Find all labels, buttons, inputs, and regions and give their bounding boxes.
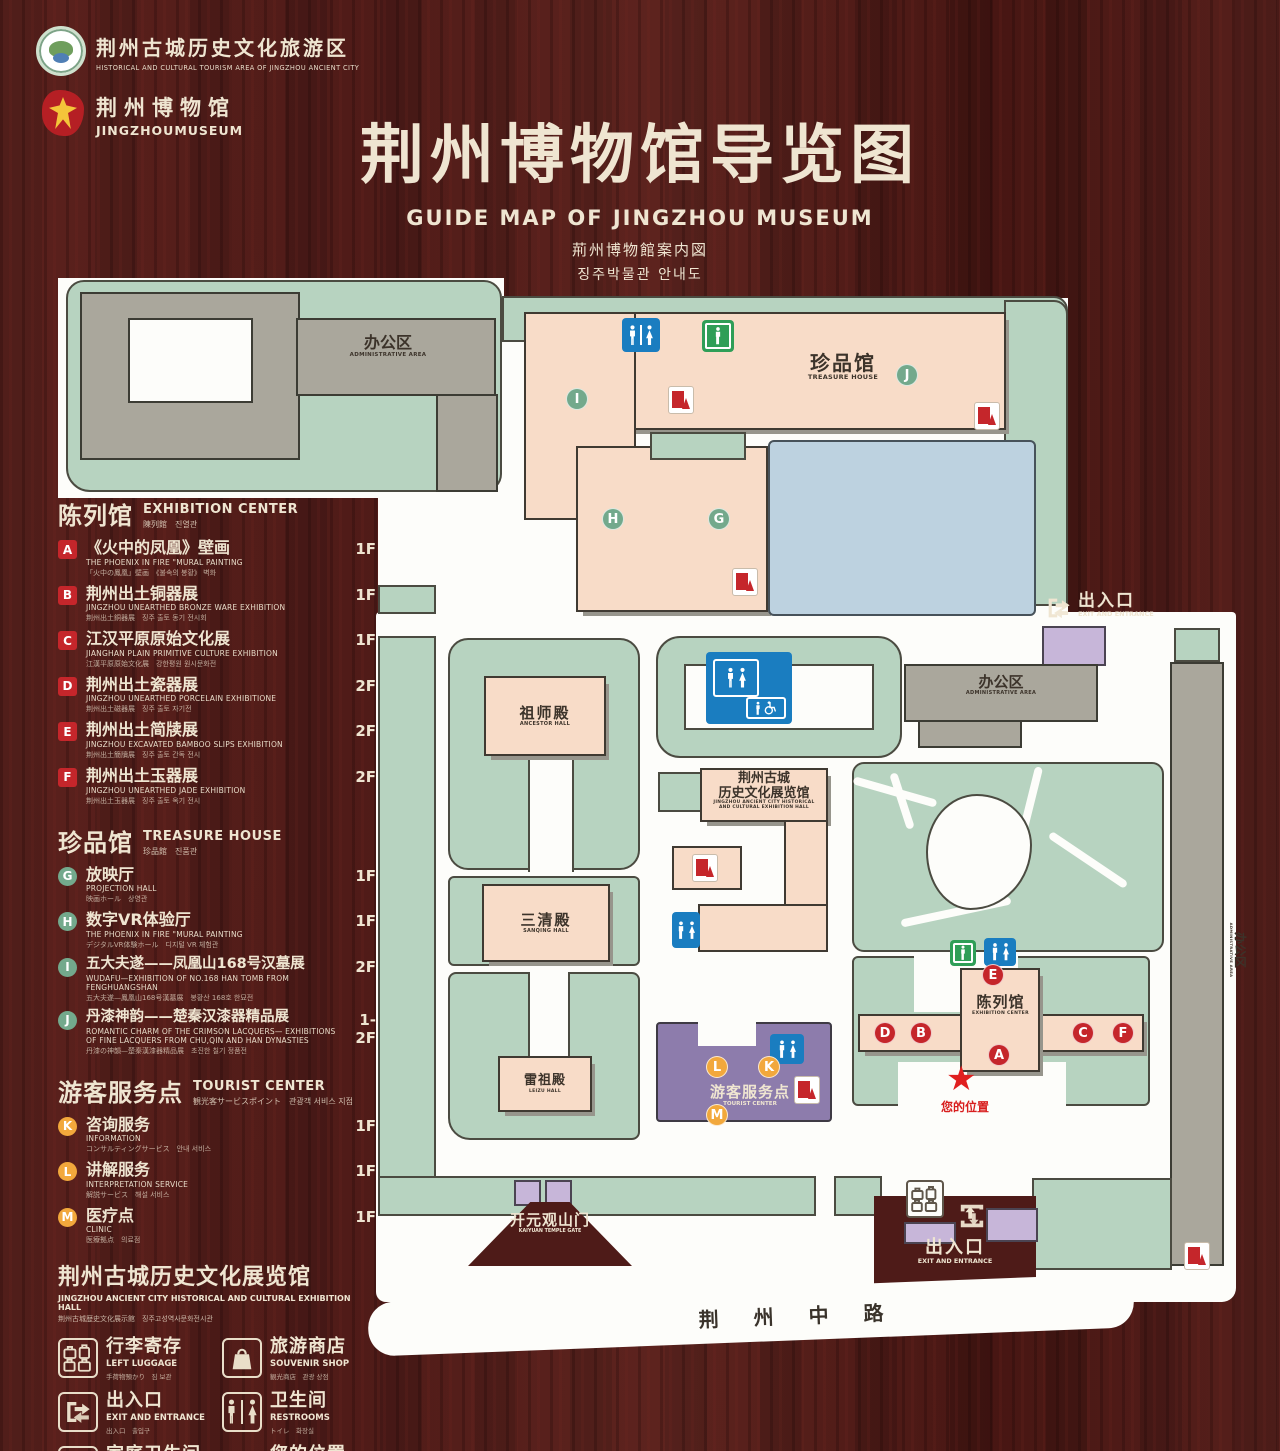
your-location-star: ★ [946, 1062, 976, 1096]
symbol-exit-entrance: 出入口 EXIT AND ENTRANCE 出入口 출입구 [58, 1392, 212, 1435]
escalator-icon [1184, 1242, 1210, 1270]
leizu-hall: 雷祖殿 LEIZU HALL [498, 1056, 592, 1112]
family-restrooms-icon [58, 1446, 98, 1451]
your-location-label: 您的位置 [910, 1098, 1020, 1115]
symbol-souvenir-shop: 旅游商店 SOUVENIR SHOP 観光商店 관광 상점 [222, 1338, 376, 1381]
legend-item-L: L 讲解服务 INTERPRETATION SERVICE 解説サービス 해설 … [58, 1161, 376, 1200]
museum-title: 荆州博物馆 JINGZHOUMUSEUM [96, 92, 243, 138]
marker-M: M [706, 1104, 728, 1126]
hall-heading: 荆州古城历史文化展览馆 JINGZHOU ANCIENT CITY HISTOR… [58, 1259, 376, 1324]
section-treasure-house: 珍品馆 TREASURE HOUSE 珍品館 진품관 [58, 823, 376, 858]
marker-D: D [874, 1022, 896, 1044]
admin-courtyard [128, 318, 253, 403]
tourism-area-en: HISTORICAL AND CULTURAL TOURISM AREA OF … [96, 64, 359, 72]
ancestor-corridor [528, 756, 574, 872]
marker-K: K [758, 1056, 780, 1078]
section-exhibition-center: 陈列馆 EXHIBITION CENTER 陳列館 진열관 [58, 496, 376, 531]
section-tourist-center: 游客服务点 TOURIST CENTER 観光客サービスポイント 관광객 서비스… [58, 1073, 376, 1108]
restroom-sign-exhibition [984, 938, 1016, 966]
gatehouse-building [1042, 626, 1106, 666]
south-lawn-left [378, 1176, 816, 1216]
tourist-notch [698, 1022, 756, 1046]
kaiyuan-gate-label: 开元观山门 KAIYUAN TEMPLE GATE [468, 1212, 632, 1234]
restroom-sign-central [706, 652, 792, 724]
title-en: GUIDE MAP OF JINGZHOU MUSEUM [240, 206, 1040, 230]
restrooms-icon [222, 1392, 262, 1432]
marker-I: I [566, 388, 588, 410]
tourist-center-label: 游客服务点 TOURIST CENTER [685, 1084, 815, 1107]
tourism-area-cn: 荆州古城历史文化旅游区 [96, 32, 359, 61]
lake [768, 440, 1036, 616]
marker-B: B [910, 1022, 932, 1044]
title-cn: 荆州博物馆导览图 [240, 104, 1040, 196]
legend-panel: 陈列馆 EXHIBITION CENTER 陳列館 진열관 A 《火中的凤凰》壁… [58, 496, 376, 1451]
marker-J: J [896, 364, 918, 386]
legend-item-B: B 荆州出土铜器展 JINGZHOU UNEARTHED BRONZE WARE… [58, 585, 376, 624]
museum-en: JINGZHOUMUSEUM [96, 123, 243, 138]
legend-item-F: F 荆州出土玉器展 JINGZHOU UNEARTHED JADE EXHIBI… [58, 767, 376, 806]
your-location-icon: ★ [222, 1446, 262, 1451]
sanqing-hall: 三清殿 SANQING HALL [482, 884, 610, 962]
exit-top-label: 出入口 EXIT AND ENTRANCE [1078, 592, 1188, 618]
admin-right-label: 办公区 ADMINISTRATIVE AREA [904, 674, 1098, 696]
legend-item-E: E 荆州出土简牍展 JINGZHOU EXCAVATED BAMBOO SLIP… [58, 721, 376, 760]
admin-right-annex [918, 720, 1022, 748]
legend-item-M: M 医疗点 CLINIC 医療拠点 의료점 1F [58, 1207, 376, 1246]
elevator-sign-treasure [702, 320, 734, 352]
title-jp: 荊州博物館案内図 [240, 239, 1040, 260]
legend-item-G: G 放映厅 PROJECTION HALL 映画ホール 상영관 1F [58, 866, 376, 905]
elevator-sign-exhibition [950, 940, 976, 966]
guide-map-poster: 荆州古城历史文化旅游区 HISTORICAL AND CULTURAL TOUR… [0, 0, 1280, 1451]
exit-bottom-label: 出入口 EXIT AND ENTRANCE [900, 1238, 1010, 1265]
left-luggage-map-icon [906, 1180, 944, 1218]
road-label: 荆 州 中 路 [598, 1293, 999, 1337]
ancestor-hall: 祖师殿 ANCESTOR HALL [484, 676, 606, 756]
symbol-left-luggage: 行李寄存 LEFT LUGGAGE 手荷物預かり 짐 보관 [58, 1338, 212, 1381]
marker-G: G [708, 508, 730, 530]
exit-bottom-icon [958, 1202, 986, 1230]
left-luggage-icon [58, 1338, 98, 1378]
exhibition-center-label: 陈列馆 EXHIBITION CENTER [928, 994, 1073, 1016]
tourism-area-logo [36, 26, 86, 76]
legend-item-H: H 数字VR体验厅 THE PHOENIX IN FIRE "MURAL PAI… [58, 911, 376, 950]
legend-item-J: J 丹漆神韵——楚秦汉漆器精品展 ROMANTIC CHARM OF THE C… [58, 1010, 376, 1056]
legend-item-K: K 咨询服务 INFORMATION コンサルティングサービス 안내 서비스 1… [58, 1116, 376, 1155]
marker-H: H [602, 508, 624, 530]
legend-item-C: C 江汉平原原始文化展 JIANGHAN PLAIN PRIMITIVE CUL… [58, 630, 376, 669]
restroom-sign-treasure [622, 318, 660, 352]
marker-E: E [982, 964, 1004, 986]
restroom-sign-hall [672, 912, 700, 948]
treasure-terrace [650, 432, 746, 460]
marker-A: A [988, 1044, 1010, 1066]
history-hall-south [698, 904, 828, 952]
symbol-family-restrooms: 家庭卫生间 FAMILY RESTROOMS 家族用トイレ 가족 화장실 [58, 1446, 212, 1451]
strip-lawn-cap [1174, 628, 1220, 662]
west-lawn-upper [378, 585, 436, 614]
tourism-area-title: 荆州古城历史文化旅游区 HISTORICAL AND CULTURAL TOUR… [96, 32, 359, 72]
symbol-legend: 行李寄存 LEFT LUGGAGE 手荷物預かり 짐 보관 旅游商店 SOUVE… [58, 1338, 376, 1451]
exit-top-icon [1044, 596, 1072, 620]
escalator-icon [692, 854, 718, 882]
exit-entrance-icon [58, 1392, 98, 1432]
admin-area-label: 办公区 ADMINISTRATIVE AREA [298, 334, 478, 358]
escalator-icon [974, 402, 1000, 430]
south-gatehouse [986, 1208, 1038, 1242]
marker-F: F [1112, 1022, 1134, 1044]
legend-item-A: A 《火中的凤凰》壁画 THE PHOENIX IN FIRE "MURAL P… [58, 539, 376, 578]
souvenir-shop-icon [222, 1338, 262, 1378]
south-lawn-right [1032, 1178, 1172, 1270]
escalator-icon [668, 386, 694, 414]
museum-cn: 荆州博物馆 [96, 92, 243, 122]
west-lawn-strip [378, 636, 436, 1214]
museum-logo [42, 90, 84, 136]
page-title: 荆州博物馆导览图 GUIDE MAP OF JINGZHOU MUSEUM 荊州… [240, 104, 1040, 284]
marker-C: C [1072, 1022, 1094, 1044]
leizu-corridor [528, 972, 570, 1056]
escalator-icon [732, 568, 758, 596]
marker-L: L [706, 1056, 728, 1078]
admin-building-arm [436, 394, 498, 492]
symbol-restrooms: 卫生间 RESTROOMS トイレ 화장실 [222, 1392, 376, 1435]
symbol-your-location: ★ 您的位置 YOUR LOCATION あなたの位置 당신의 위치 [222, 1446, 376, 1451]
legend-item-D: D 荆州出土瓷器展 JINGZHOU UNEARTHED PORCELAIN E… [58, 676, 376, 715]
legend-item-I: I 五大夫遂——凤凰山168号汉墓展 WUDAFU—EXHIBITION OF … [58, 957, 376, 1003]
history-hall-label: 荆州古城 历史文化展览馆 JINGZHOU ANCIENT CITY HISTO… [694, 772, 834, 811]
